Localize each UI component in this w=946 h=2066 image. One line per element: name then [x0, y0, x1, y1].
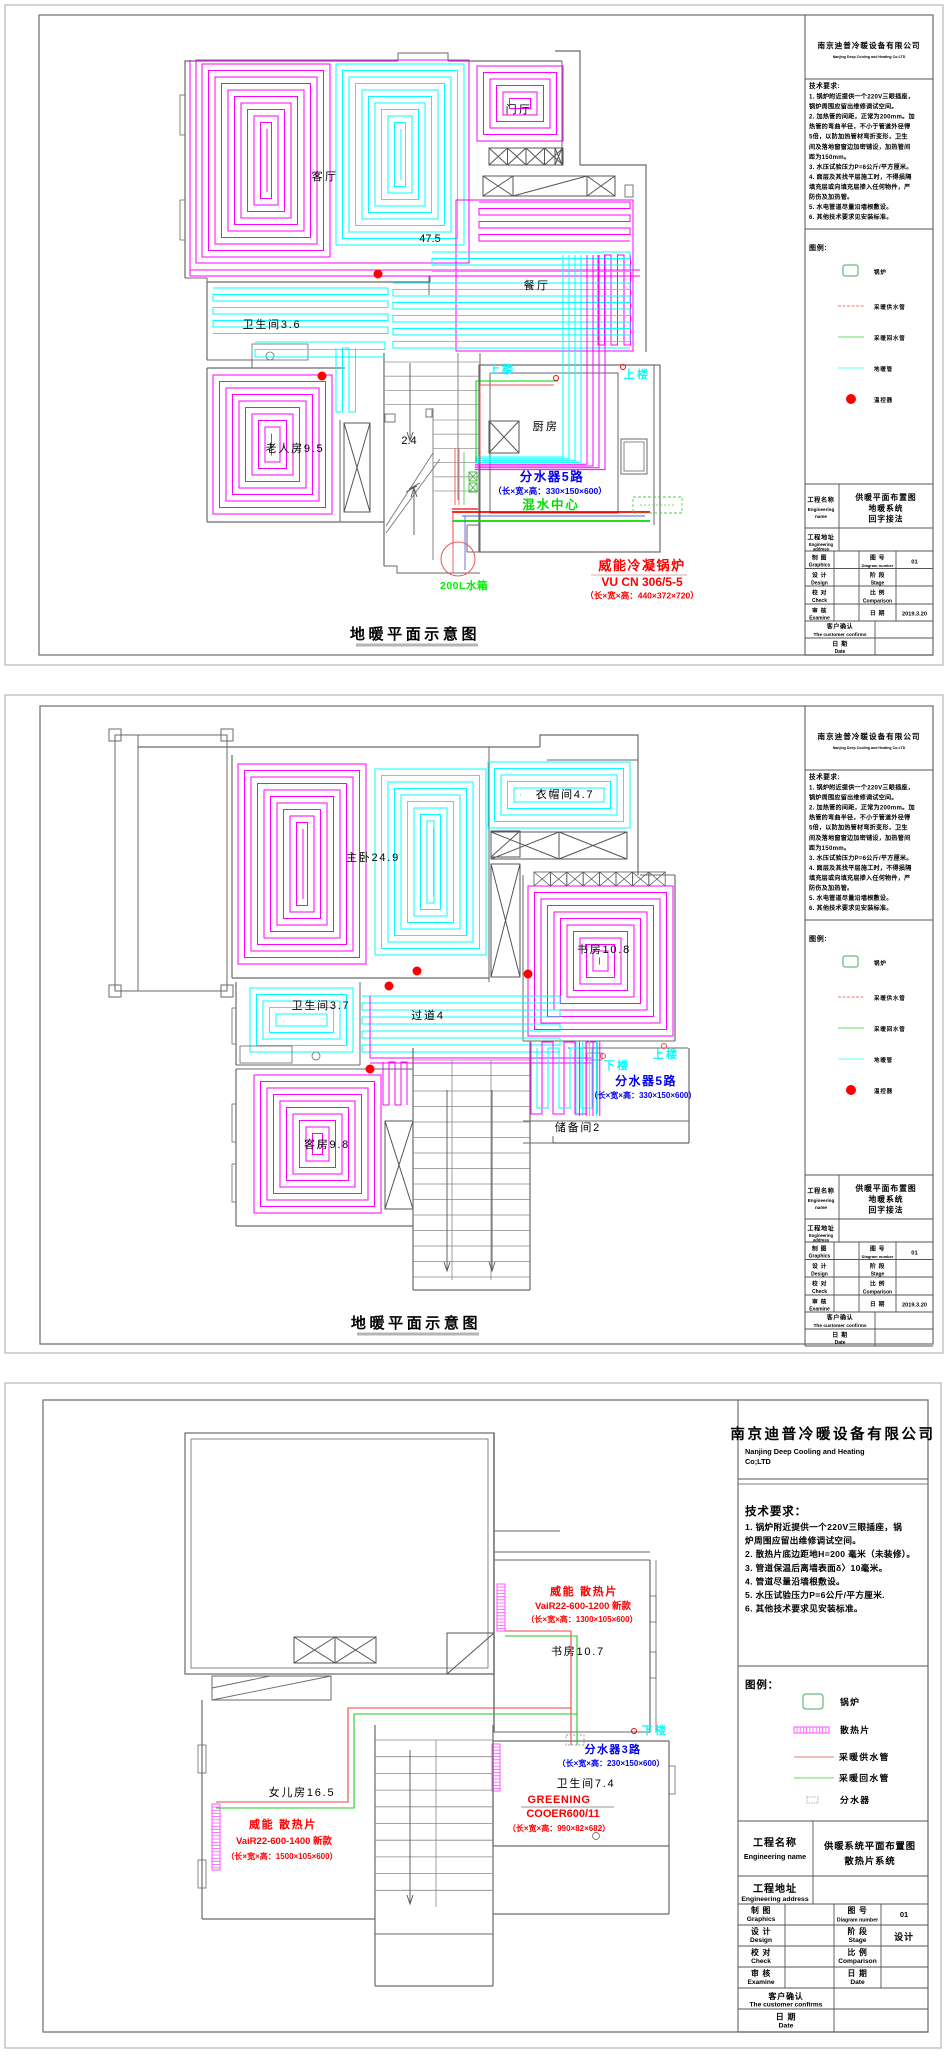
svg-text:校 对: 校 对: [812, 589, 827, 597]
svg-text:2. 加热管的间距，正常为200mm。加: 2. 加热管的间距，正常为200mm。加: [809, 804, 915, 812]
svg-text:Engineering name: Engineering name: [744, 1852, 806, 1861]
svg-text:锅炉: 锅炉: [874, 959, 887, 967]
svg-text:设计: 设计: [894, 1931, 914, 1942]
svg-text:采暖供水管: 采暖供水管: [873, 994, 906, 1002]
svg-text:图 号: 图 号: [870, 554, 885, 562]
svg-text:审 核: 审 核: [751, 1968, 771, 1978]
svg-text:阶 段: 阶 段: [847, 1926, 867, 1936]
svg-text:VaiR22-600-1200 新款: VaiR22-600-1200 新款: [535, 1600, 632, 1612]
svg-text:Examine: Examine: [809, 1307, 830, 1313]
svg-text:散热片: 散热片: [840, 1724, 870, 1735]
svg-text:VaiR22-600-1400 新款: VaiR22-600-1400 新款: [236, 1835, 333, 1847]
svg-text:客厅: 客厅: [312, 169, 339, 183]
svg-text:日 期: 日 期: [832, 1331, 847, 1339]
svg-text:采暖供水管: 采暖供水管: [838, 1751, 890, 1762]
svg-text:工程地址: 工程地址: [753, 1882, 797, 1895]
svg-text:2019.3.20: 2019.3.20: [902, 612, 927, 618]
svg-text:Check: Check: [812, 1289, 827, 1295]
svg-text:Graphics: Graphics: [809, 1254, 831, 1260]
svg-text:防伤及加热管。: 防伤及加热管。: [809, 884, 853, 892]
svg-text:供暖平面布置图: 供暖平面布置图: [854, 1183, 916, 1193]
svg-text:Examine: Examine: [809, 616, 830, 622]
svg-text:书房10.8: 书房10.8: [577, 943, 631, 956]
svg-text:4. 管道尽量沿墙根敷设。: 4. 管道尽量沿墙根敷设。: [745, 1575, 845, 1586]
svg-text:（长×宽×高：440×372×720）: （长×宽×高：440×372×720）: [585, 591, 698, 601]
svg-text:采暖供水管: 采暖供水管: [873, 303, 906, 311]
svg-text:地暖平面示意图: 地暖平面示意图: [350, 625, 480, 643]
svg-text:分水器5路: 分水器5路: [615, 1073, 677, 1088]
svg-text:餐厅: 餐厅: [524, 278, 551, 292]
svg-text:COOER600/11: COOER600/11: [526, 1808, 599, 1820]
svg-text:VU CN 306/5-5: VU CN 306/5-5: [601, 575, 683, 589]
svg-text:address: address: [813, 547, 830, 552]
svg-text:5. 水压试验压力P=6公斤/平方厘米.: 5. 水压试验压力P=6公斤/平方厘米.: [745, 1589, 885, 1600]
svg-text:老人房9.5: 老人房9.5: [266, 442, 325, 455]
svg-text:3. 水压试验压力P=6公斤/平方厘米。: 3. 水压试验压力P=6公斤/平方厘米。: [809, 854, 913, 862]
svg-text:日 期: 日 期: [832, 640, 847, 648]
svg-text:上楼: 上楼: [489, 362, 515, 376]
svg-text:阶 段: 阶 段: [870, 1262, 885, 1270]
svg-text:间及落地窗窗边加密铺设，加热管间: 间及落地窗窗边加密铺设，加热管间: [809, 143, 910, 151]
svg-text:The customer confirms: The customer confirms: [813, 1323, 866, 1329]
svg-text:工程名称: 工程名称: [807, 1187, 834, 1195]
svg-text:热管的弯曲半径，不小于管道外径得: 热管的弯曲半径，不小于管道外径得: [809, 123, 910, 131]
svg-text:（长×宽×高：990×82×682）: （长×宽×高：990×82×682）: [508, 1823, 610, 1833]
svg-text:审 核: 审 核: [812, 1298, 827, 1306]
svg-text:（长×宽×高：1500×105×600）: （长×宽×高：1500×105×600）: [226, 1851, 337, 1861]
svg-text:01: 01: [911, 1251, 918, 1257]
svg-text:图例:: 图例:: [809, 934, 827, 943]
svg-text:图 号: 图 号: [870, 1245, 885, 1253]
svg-text:Graphics: Graphics: [747, 1916, 776, 1923]
svg-text:地暖系统: 地暖系统: [869, 503, 904, 513]
svg-text:设 计: 设 计: [812, 571, 827, 579]
svg-text:6. 其他技术要求见安装标准。: 6. 其他技术要求见安装标准。: [809, 904, 893, 912]
svg-text:The customer confirms: The customer confirms: [750, 2002, 823, 2009]
svg-text:2. 加热管的间距，正常为200mm。加: 2. 加热管的间距，正常为200mm。加: [809, 113, 915, 121]
svg-text:门厅: 门厅: [506, 102, 533, 116]
svg-text:南京迪普冷暖设备有限公司: 南京迪普冷暖设备有限公司: [818, 40, 921, 50]
svg-text:Co;LTD: Co;LTD: [745, 1457, 771, 1466]
svg-text:分水器3路: 分水器3路: [585, 1742, 642, 1756]
svg-text:工程地址: 工程地址: [807, 534, 834, 542]
svg-text:Stage: Stage: [871, 1272, 885, 1278]
svg-text:比 例: 比 例: [870, 1280, 885, 1288]
svg-text:供暖平面布置图: 供暖平面布置图: [854, 492, 916, 502]
svg-text:Design: Design: [811, 1272, 828, 1278]
svg-text:Date: Date: [779, 2023, 794, 2030]
svg-text:地暖管: 地暖管: [874, 365, 893, 373]
svg-text:填充层或向填充层掺入任何物件，严: 填充层或向填充层掺入任何物件，严: [809, 183, 910, 191]
svg-text:上楼: 上楼: [624, 367, 650, 381]
svg-text:南京迪普冷暖设备有限公司: 南京迪普冷暖设备有限公司: [730, 1425, 935, 1443]
svg-text:过道4: 过道4: [411, 1008, 444, 1022]
svg-text:Engineering: Engineering: [808, 507, 835, 512]
svg-text:Nanjing Deep Cooling and Heati: Nanjing Deep Cooling and Heating Co;LTD: [833, 55, 906, 59]
svg-text:分水器: 分水器: [840, 1794, 870, 1805]
svg-text:5. 水电管道尽量沿墙根敷设。: 5. 水电管道尽量沿墙根敷设。: [809, 894, 893, 902]
svg-text:供暖系统平面布置图: 供暖系统平面布置图: [823, 1840, 916, 1851]
svg-text:工程名称: 工程名称: [807, 496, 834, 504]
svg-text:设 计: 设 计: [751, 1926, 771, 1936]
svg-text:卫生间7.4: 卫生间7.4: [557, 1776, 616, 1790]
svg-text:Date: Date: [835, 1340, 846, 1346]
svg-text:制 图: 制 图: [812, 554, 827, 562]
svg-text:下楼: 下楼: [604, 1058, 630, 1072]
svg-text:address: address: [813, 1238, 830, 1243]
svg-text:5倍，以防加热管材弯折变形，卫生: 5倍，以防加热管材弯折变形，卫生: [809, 133, 908, 141]
svg-text:图例:: 图例:: [809, 243, 827, 252]
svg-text:Comparison: Comparison: [863, 599, 892, 605]
svg-text:客户确认: 客户确认: [767, 1991, 803, 2001]
svg-text:锅炉周围应留出维修调试空间。: 锅炉周围应留出维修调试空间。: [809, 103, 898, 111]
svg-text:防伤及加热管。: 防伤及加热管。: [809, 193, 853, 201]
svg-text:锅炉: 锅炉: [840, 1696, 860, 1707]
svg-text:1. 锅炉附近提供一个220V三眼插座，: 1. 锅炉附近提供一个220V三眼插座，: [809, 93, 914, 101]
svg-text:衣帽间4.7: 衣帽间4.7: [536, 787, 595, 801]
svg-text:混水中心: 混水中心: [522, 497, 580, 512]
svg-text:GREENING: GREENING: [527, 1794, 590, 1806]
svg-text:间及落地窗窗边加密铺设，加热管间: 间及落地窗窗边加密铺设，加热管间: [809, 834, 910, 842]
svg-text:日 期: 日 期: [870, 609, 885, 617]
svg-text:南京迪普冷暖设备有限公司: 南京迪普冷暖设备有限公司: [818, 731, 921, 741]
svg-text:散热片系统: 散热片系统: [844, 1855, 895, 1866]
svg-text:Examine: Examine: [747, 1979, 774, 1986]
svg-text:技术要求:: 技术要求:: [809, 772, 840, 781]
svg-text:下楼: 下楼: [642, 1723, 668, 1737]
svg-text:填充层或向填充层掺入任何物件，严: 填充层或向填充层掺入任何物件，严: [809, 874, 910, 882]
svg-text:校 对: 校 对: [812, 1280, 827, 1288]
svg-text:卫生间3.6: 卫生间3.6: [243, 317, 302, 331]
svg-text:3. 水压试验压力P=6公斤/平方厘米。: 3. 水压试验压力P=6公斤/平方厘米。: [809, 163, 913, 171]
svg-text:Design: Design: [750, 1937, 772, 1944]
svg-text:name: name: [815, 1205, 827, 1210]
svg-text:回字接法: 回字接法: [869, 514, 904, 524]
svg-text:比 例: 比 例: [847, 1947, 867, 1957]
svg-text:客户确认: 客户确认: [826, 623, 854, 631]
svg-text:6. 其他技术要求见安装标准。: 6. 其他技术要求见安装标准。: [809, 213, 893, 221]
svg-text:200L水箱: 200L水箱: [440, 579, 488, 592]
svg-text:比 例: 比 例: [870, 589, 885, 597]
svg-text:Diagram number: Diagram number: [862, 1254, 894, 1259]
svg-text:2.4: 2.4: [401, 435, 416, 447]
svg-text:工程地址: 工程地址: [807, 1225, 834, 1233]
svg-text:4. 面层及其找平层施工时，不得损隔: 4. 面层及其找平层施工时，不得损隔: [809, 864, 912, 872]
svg-text:（长×宽×高：330×150×600）: （长×宽×高：330×150×600）: [493, 486, 606, 496]
svg-text:（长×宽×高：230×150×600）: （长×宽×高：230×150×600）: [558, 1758, 665, 1768]
svg-text:审 核: 审 核: [812, 607, 827, 615]
svg-text:炉周围应留出维修调试空间。: 炉周围应留出维修调试空间。: [745, 1535, 861, 1546]
svg-text:The customer confirms: The customer confirms: [813, 632, 866, 638]
svg-text:女儿房16.5: 女儿房16.5: [269, 1785, 336, 1799]
svg-text:锅炉: 锅炉: [874, 268, 887, 276]
svg-text:1. 锅炉附近提供一个220V三眼插座，锅: 1. 锅炉附近提供一个220V三眼插座，锅: [745, 1521, 902, 1532]
svg-text:上楼: 上楼: [653, 1047, 679, 1061]
svg-text:Stage: Stage: [849, 1937, 867, 1944]
svg-text:1. 锅炉附近提供一个220V三眼插座，: 1. 锅炉附近提供一个220V三眼插座，: [809, 784, 914, 792]
svg-text:书房10.7: 书房10.7: [551, 1645, 605, 1658]
svg-text:Engineering: Engineering: [808, 1198, 835, 1203]
svg-text:威能 散热片: 威能 散热片: [550, 1584, 618, 1598]
svg-text:2. 散热片底边距地H=200 毫米（未装修）。: 2. 散热片底边距地H=200 毫米（未装修）。: [745, 1548, 915, 1559]
svg-text:图例：: 图例：: [745, 1678, 779, 1691]
svg-text:（长×宽×高：330×150×600）: （长×宽×高：330×150×600）: [590, 1090, 697, 1100]
svg-text:技术要求:: 技术要求:: [809, 81, 840, 90]
svg-text:Graphics: Graphics: [809, 563, 831, 569]
svg-text:日 期: 日 期: [870, 1300, 885, 1308]
svg-text:Date: Date: [850, 1979, 865, 1986]
svg-text:地暖管: 地暖管: [874, 1056, 893, 1064]
svg-text:客户确认: 客户确认: [826, 1314, 854, 1322]
svg-text:采暖回水管: 采暖回水管: [873, 334, 906, 342]
svg-text:距为150mm。: 距为150mm。: [809, 153, 850, 161]
svg-text:4. 面层及其找平层施工时，不得损隔: 4. 面层及其找平层施工时，不得损隔: [809, 173, 912, 181]
svg-text:01: 01: [900, 1910, 908, 1919]
svg-text:2019.3.20: 2019.3.20: [902, 1303, 927, 1309]
svg-text:5. 水电管道尽量沿墙根敷设。: 5. 水电管道尽量沿墙根敷设。: [809, 203, 893, 211]
svg-text:Stage: Stage: [871, 581, 885, 587]
svg-text:校 对: 校 对: [751, 1947, 771, 1957]
svg-text:Diagram number: Diagram number: [837, 1918, 878, 1924]
svg-text:地暖系统: 地暖系统: [869, 1194, 904, 1204]
svg-text:距为150mm。: 距为150mm。: [809, 844, 850, 852]
svg-text:Comparison: Comparison: [863, 1290, 892, 1296]
svg-text:Date: Date: [835, 649, 846, 655]
svg-text:图 号: 图 号: [847, 1906, 867, 1915]
svg-text:日 期: 日 期: [847, 1968, 867, 1978]
svg-text:工程名称: 工程名称: [753, 1836, 797, 1849]
svg-text:Comparison: Comparison: [838, 1958, 876, 1965]
svg-text:3. 管道保温后离墙表面δ〉10毫米。: 3. 管道保温后离墙表面δ〉10毫米。: [745, 1562, 888, 1573]
svg-text:热管的弯曲半径，不小于管道外径得: 热管的弯曲半径，不小于管道外径得: [809, 814, 910, 822]
svg-text:锅炉周围应留出维修调试空间。: 锅炉周围应留出维修调试空间。: [809, 794, 898, 802]
svg-text:日 期: 日 期: [776, 2012, 797, 2022]
svg-text:卫生间3.7: 卫生间3.7: [292, 998, 351, 1012]
svg-text:设 计: 设 计: [812, 1262, 827, 1270]
svg-text:制 图: 制 图: [751, 1905, 771, 1915]
svg-text:Nanjing Deep Cooling and Heati: Nanjing Deep Cooling and Heating: [745, 1447, 865, 1456]
svg-text:客房9.8: 客房9.8: [304, 1137, 350, 1151]
svg-text:47.5: 47.5: [419, 233, 440, 245]
svg-text:采暖回水管: 采暖回水管: [838, 1772, 890, 1783]
svg-text:6. 其他技术要求见安装标准。: 6. 其他技术要求见安装标准。: [745, 1603, 863, 1614]
svg-text:Design: Design: [811, 581, 828, 587]
svg-text:5倍，以防加热管材弯折变形，卫生: 5倍，以防加热管材弯折变形，卫生: [809, 824, 908, 832]
svg-text:威能冷凝锅炉: 威能冷凝锅炉: [598, 558, 685, 573]
svg-text:厨房: 厨房: [533, 420, 560, 433]
svg-text:储备间2: 储备间2: [555, 1120, 601, 1134]
svg-text:Engineering address: Engineering address: [741, 1896, 808, 1903]
svg-text:回字接法: 回字接法: [869, 1205, 904, 1215]
svg-text:Diagram number: Diagram number: [862, 563, 894, 568]
svg-text:01: 01: [911, 560, 918, 566]
svg-text:技术要求：: 技术要求：: [745, 1504, 807, 1518]
svg-text:name: name: [815, 514, 827, 519]
svg-text:Check: Check: [751, 1958, 771, 1965]
svg-text:威能 散热片: 威能 散热片: [249, 1817, 317, 1831]
svg-text:分水器5路: 分水器5路: [520, 469, 584, 484]
svg-text:温控器: 温控器: [874, 396, 893, 404]
svg-text:Nanjing Deep Cooling and Heati: Nanjing Deep Cooling and Heating Co;LTD: [833, 746, 906, 750]
svg-text:阶 段: 阶 段: [870, 571, 885, 579]
svg-text:主卧24.9: 主卧24.9: [346, 851, 400, 864]
svg-text:制 图: 制 图: [812, 1245, 827, 1253]
svg-text:温控器: 温控器: [874, 1087, 893, 1095]
svg-text:（长×宽×高：1300×105×600）: （长×宽×高：1300×105×600）: [526, 1614, 637, 1624]
svg-text:Check: Check: [812, 598, 827, 604]
svg-text:采暖回水管: 采暖回水管: [873, 1025, 906, 1033]
svg-text:地暖平面示意图: 地暖平面示意图: [351, 1314, 481, 1332]
